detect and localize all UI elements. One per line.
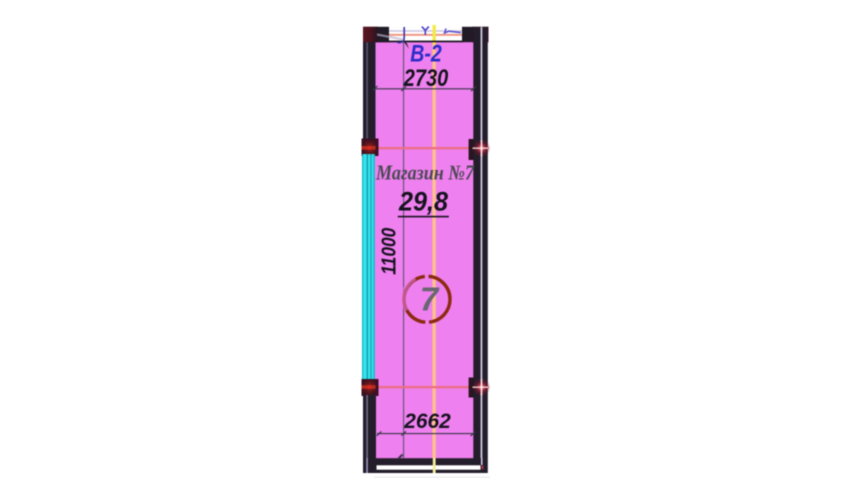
- svg-text:2662: 2662: [403, 409, 450, 433]
- svg-text:7: 7: [420, 281, 440, 318]
- svg-text:2730: 2730: [403, 65, 449, 92]
- svg-text:11000: 11000: [379, 228, 401, 275]
- svg-text:B-2: B-2: [410, 41, 442, 68]
- svg-text:29,8: 29,8: [398, 187, 448, 217]
- svg-text:Магазин №7: Магазин №7: [375, 161, 475, 185]
